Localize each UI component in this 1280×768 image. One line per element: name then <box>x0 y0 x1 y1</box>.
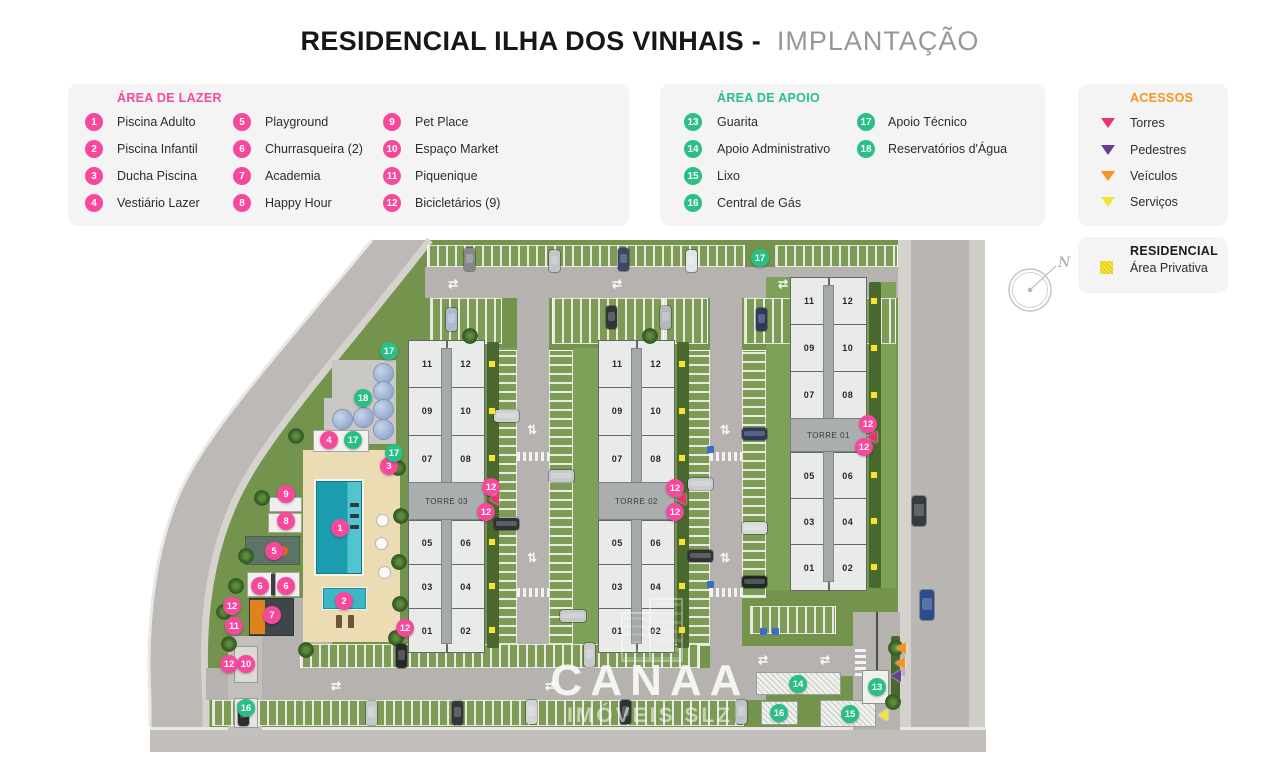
area-privativa-marker <box>679 408 685 414</box>
pool-lounger <box>350 503 359 507</box>
access-triangle-veiculos <box>896 642 906 654</box>
tower-torre-01: 111209100708TORRE 01050603040102 <box>790 277 867 590</box>
pool-umbrella <box>375 537 388 550</box>
marker-12: 12 <box>220 655 238 673</box>
car <box>742 428 767 440</box>
road-arrow: ⇄ <box>778 278 788 290</box>
marker-16: 16 <box>237 699 255 717</box>
tower-unit-cell: 12 <box>829 277 868 325</box>
palm-tree <box>238 548 254 564</box>
lawn-strip <box>573 348 598 646</box>
marker-10: 10 <box>237 655 255 673</box>
unit-number: 01 <box>804 563 815 573</box>
tower-unit-cell: 08 <box>637 435 676 483</box>
water-tank <box>354 408 373 427</box>
tower-unit-cell: 04 <box>829 498 868 545</box>
area-privativa-marker <box>489 539 495 545</box>
parking-strip <box>686 350 710 646</box>
tower-unit-cell: 02 <box>637 608 676 653</box>
parking-strip <box>212 700 744 726</box>
palm-tree <box>391 554 407 570</box>
unit-number: 05 <box>612 538 623 548</box>
parking-strip <box>549 350 573 646</box>
marker-18: 18 <box>354 389 372 407</box>
unit-number: 06 <box>842 471 853 481</box>
gate-arm <box>876 612 878 670</box>
tower-unit-cell: 10 <box>829 324 868 372</box>
tower-unit-cell: 10 <box>637 387 676 435</box>
unit-number: 06 <box>460 538 471 548</box>
tower-unit-cell: 06 <box>829 452 868 499</box>
area-privativa-marker <box>679 455 685 461</box>
area-privativa-marker <box>679 583 685 589</box>
water-tank <box>374 364 393 383</box>
unit-number: 10 <box>650 406 661 416</box>
unit-number: 09 <box>804 343 815 353</box>
road-arrow: ⇄ <box>758 654 768 666</box>
water-tank <box>374 382 393 401</box>
unit-number: 04 <box>460 582 471 592</box>
unit-number: 07 <box>804 390 815 400</box>
unit-number: 08 <box>460 454 471 464</box>
car <box>756 308 767 331</box>
vertical-road-west <box>517 296 549 670</box>
road-arrow: ⇄ <box>820 654 830 666</box>
tower-unit-cell: 06 <box>637 520 676 565</box>
palm-tree <box>288 428 304 444</box>
marker-6: 6 <box>251 577 269 595</box>
accessible-parking-sign <box>760 628 767 635</box>
unit-number: 05 <box>422 538 433 548</box>
compass-north-label: N <box>1057 255 1071 271</box>
pool-umbrella <box>378 566 391 579</box>
unit-number: 09 <box>612 406 623 416</box>
tower-unit-cell: 08 <box>447 435 486 483</box>
car <box>920 590 934 620</box>
unit-number: 12 <box>460 359 471 369</box>
tower-name-label: TORRE 02 <box>615 497 658 506</box>
road-arrow: ⇅ <box>527 424 537 436</box>
tower-name-band: TORRE 02 <box>598 482 675 520</box>
road-arrow: ⇄ <box>448 278 458 290</box>
car <box>494 410 519 422</box>
tower-unit-cell: 04 <box>447 564 486 609</box>
tower-unit-cell: 10 <box>447 387 486 435</box>
road-arrow: ⇄ <box>331 680 341 692</box>
area-privativa-marker <box>489 627 495 633</box>
marker-17: 17 <box>344 431 362 449</box>
palm-tree <box>254 490 270 506</box>
pool-lounger <box>350 514 359 518</box>
car <box>618 248 629 271</box>
marker-13: 13 <box>868 678 886 696</box>
vertical-road-east <box>710 296 742 670</box>
car <box>549 250 560 272</box>
marker-6: 6 <box>277 577 295 595</box>
car <box>560 610 586 622</box>
unit-number: 08 <box>842 390 853 400</box>
area-privativa-marker <box>871 392 877 398</box>
unit-number: 11 <box>422 359 433 369</box>
palm-tree <box>642 328 658 344</box>
tower-unit-cell: 02 <box>829 544 868 591</box>
pool-umbrella <box>376 514 389 527</box>
palm-tree <box>221 636 237 652</box>
marker-16: 16 <box>770 704 788 722</box>
car <box>742 522 767 534</box>
car <box>464 248 475 271</box>
road-arrow: ⇅ <box>720 552 730 564</box>
area-privativa-marker <box>871 564 877 570</box>
car <box>549 470 574 482</box>
palm-tree <box>885 694 901 710</box>
site-plan: CANAA IMÓVEIS SLZ N 111209100708TORRE 01… <box>0 0 1280 768</box>
unit-number: 04 <box>842 517 853 527</box>
unit-number: 03 <box>422 582 433 592</box>
pool-lounger <box>350 525 359 529</box>
tower-unit-cell: 02 <box>447 608 486 653</box>
accessible-parking-sign <box>707 446 714 453</box>
car <box>526 700 537 724</box>
parking-strip <box>742 350 766 598</box>
water-tank <box>374 420 393 439</box>
marker-9: 9 <box>277 485 295 503</box>
unit-number: 02 <box>650 626 661 636</box>
unit-number: 01 <box>422 626 433 636</box>
car <box>452 701 463 725</box>
area-privativa-marker <box>679 539 685 545</box>
accessible-parking-sign <box>772 628 779 635</box>
tower-unit-cell: 12 <box>447 340 486 388</box>
marker-12: 12 <box>477 503 495 521</box>
car <box>688 478 713 490</box>
marker-11: 11 <box>225 617 243 635</box>
access-triangle-servicos <box>878 709 888 721</box>
palm-tree <box>392 596 408 612</box>
marker-8: 8 <box>277 512 295 530</box>
area-privativa-marker <box>871 298 877 304</box>
unit-number: 03 <box>804 517 815 527</box>
road-arrow: ⇅ <box>720 424 730 436</box>
area-privativa-marker <box>489 408 495 414</box>
accessible-parking-sign <box>707 581 714 588</box>
unit-number: 03 <box>612 582 623 592</box>
car <box>912 496 926 526</box>
palm-tree <box>298 642 314 658</box>
crosswalk <box>517 452 549 461</box>
car <box>686 250 697 272</box>
car <box>660 306 671 329</box>
area-privativa-marker <box>679 627 685 633</box>
crosswalk <box>517 588 549 597</box>
area-privativa-marker <box>489 455 495 461</box>
area-privativa-marker <box>679 361 685 367</box>
road-arrow: ⇅ <box>527 552 537 564</box>
unit-number: 04 <box>650 582 661 592</box>
unit-number: 02 <box>842 563 853 573</box>
car <box>620 700 631 724</box>
area-privativa-marker <box>489 583 495 589</box>
tower-name-label: TORRE 03 <box>425 497 468 506</box>
access-triangle-pedestres <box>891 670 901 682</box>
palm-tree <box>228 578 244 594</box>
unit-number: 08 <box>650 454 661 464</box>
tower-torre-03: 111209100708TORRE 03050603040102 <box>408 340 485 652</box>
marker-12: 12 <box>666 503 684 521</box>
tower-unit-cell: 04 <box>637 564 676 609</box>
crosswalk <box>710 452 742 461</box>
car <box>396 644 407 668</box>
compass: N <box>1002 252 1074 324</box>
water-tank <box>333 410 352 429</box>
access-triangle-veiculos <box>895 657 905 669</box>
marker-1: 1 <box>331 519 349 537</box>
car <box>736 700 747 724</box>
bottom-street <box>150 727 986 752</box>
churrasqueira-tables <box>271 574 275 595</box>
implantation-flyer: RESIDENCIAL ILHA DOS VINHAIS - IMPLANTAÇ… <box>0 0 1280 768</box>
unit-number: 07 <box>612 454 623 464</box>
marker-17: 17 <box>385 444 403 462</box>
marker-2: 2 <box>335 592 353 610</box>
car <box>494 518 519 530</box>
tower-name-label: TORRE 01 <box>807 431 850 440</box>
car <box>742 576 767 588</box>
unit-number: 11 <box>804 296 815 306</box>
tower-unit-cell: 06 <box>447 520 486 565</box>
right-street-outer-sidewalk <box>969 240 985 752</box>
tower-name-band: TORRE 03 <box>408 482 485 520</box>
marker-17: 17 <box>380 342 398 360</box>
marker-14: 14 <box>789 675 807 693</box>
unit-number: 12 <box>842 296 853 306</box>
unit-number: 07 <box>422 454 433 464</box>
tower-torre-02: 111209100708TORRE 02050603040102 <box>598 340 675 652</box>
unit-number: 09 <box>422 406 433 416</box>
deck-lounger <box>336 615 342 628</box>
car <box>688 550 713 562</box>
marker-4: 4 <box>320 431 338 449</box>
unit-number: 10 <box>460 406 471 416</box>
unit-number: 01 <box>612 626 623 636</box>
marker-17: 17 <box>751 249 769 267</box>
unit-number: 11 <box>612 359 623 369</box>
road-arrow: ⇄ <box>545 680 555 692</box>
bottom-internal-road <box>206 668 766 700</box>
deck-lounger <box>348 615 354 628</box>
water-tank <box>374 400 393 419</box>
unit-number: 06 <box>650 538 661 548</box>
palm-tree <box>393 508 409 524</box>
tower-unit-cell: 12 <box>637 340 676 388</box>
marker-5: 5 <box>265 542 283 560</box>
area-privativa-marker <box>871 472 877 478</box>
access-triangle-torres <box>676 493 686 505</box>
marker-12: 12 <box>223 597 241 615</box>
car <box>584 643 595 667</box>
unit-number: 05 <box>804 471 815 481</box>
car <box>606 306 617 329</box>
access-triangle-torres <box>489 493 499 505</box>
crosswalk <box>710 588 742 597</box>
parking-strip <box>775 245 898 267</box>
car <box>366 701 377 725</box>
marker-12: 12 <box>396 619 414 637</box>
unit-number: 10 <box>842 343 853 353</box>
road-arrow: ⇄ <box>612 278 622 290</box>
tower-unit-cell: 08 <box>829 371 868 419</box>
palm-tree <box>462 328 478 344</box>
unit-number: 02 <box>460 626 471 636</box>
unit-number: 12 <box>650 359 661 369</box>
access-triangle-torres <box>867 431 877 443</box>
marker-15: 15 <box>841 705 859 723</box>
area-privativa-marker <box>489 361 495 367</box>
marker-7: 7 <box>263 606 281 624</box>
car <box>446 308 457 331</box>
area-privativa-marker <box>871 518 877 524</box>
area-privativa-marker <box>871 345 877 351</box>
